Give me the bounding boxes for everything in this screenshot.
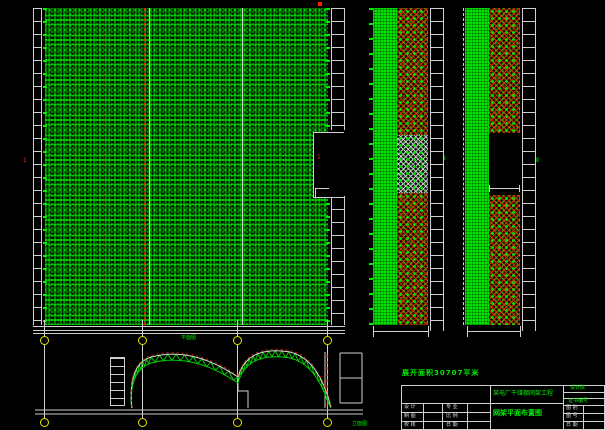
plan-centerline-2 xyxy=(281,8,282,325)
panel2-gap-tick-l xyxy=(489,185,490,192)
titleblock-vline xyxy=(423,403,424,430)
panel2-bottom-tick-l xyxy=(467,326,468,337)
panel2-bottom-tick-r xyxy=(520,326,521,337)
elevation-caption: 立面图 xyxy=(352,422,367,427)
titleblock-row-label: 日 期 xyxy=(566,423,578,428)
titleblock-vline xyxy=(583,405,584,430)
truss-chord xyxy=(238,349,331,405)
titleblock-project-name: 某电厂干煤棚网架工程 xyxy=(493,391,562,397)
plan-bottom-dimline-2 xyxy=(33,330,345,331)
truss-chord xyxy=(131,354,238,408)
titleblock-row-label: 制 图 xyxy=(404,414,416,419)
panel1-green-strip xyxy=(373,8,397,325)
truss-chord xyxy=(131,353,238,407)
plan-bottom-dimline-3 xyxy=(33,333,345,334)
titleblock-row-label: 日 期 xyxy=(446,423,458,428)
titleblock-drawing-title: 网架平面布置图 xyxy=(493,410,562,417)
titleblock-row-label: 设 计 xyxy=(404,405,416,410)
panel1-lattice-top xyxy=(397,8,428,135)
plan-topright-mark-icon xyxy=(318,2,322,6)
panel2-gap-dimline xyxy=(489,188,520,189)
plan-right-dim-ladder-upper xyxy=(331,8,345,130)
grid-bubble xyxy=(40,418,49,427)
grid-bubble xyxy=(233,336,242,345)
titleblock-cert-label: 证书编号 xyxy=(568,399,588,404)
titleblock-vline xyxy=(467,403,468,430)
plan-centerline-1 xyxy=(144,8,145,325)
panel2-green-strip xyxy=(465,8,489,325)
panel2-lattice-top xyxy=(489,8,520,133)
grid-bubble xyxy=(323,418,332,427)
titleblock-vline xyxy=(490,385,491,430)
panel1-lattice-mid xyxy=(397,135,428,193)
truss-chord xyxy=(131,360,238,408)
titleblock-hline xyxy=(563,392,605,393)
grid-line-2 xyxy=(142,320,143,418)
grid-bubble xyxy=(40,336,49,345)
panel1-mark: Ⅰ xyxy=(444,156,446,162)
titleblock-vline xyxy=(442,403,443,430)
panel1-bottom-tick-r xyxy=(428,326,429,337)
grid-bubble xyxy=(323,336,332,345)
grid-bubble xyxy=(138,418,147,427)
truss-chord xyxy=(238,351,331,407)
panel2-gap-tick-r xyxy=(519,185,520,192)
elevation-left-dim-ladder xyxy=(110,357,125,406)
panel2-bottom-dimline xyxy=(467,331,520,332)
valley-step-line xyxy=(238,378,248,408)
titleblock-org-label: 设计院 xyxy=(570,386,585,391)
panel2-mark: Ⅱ xyxy=(536,158,539,164)
panel2-lattice-bottom xyxy=(489,195,520,325)
panel1-bottom-dimline xyxy=(373,331,428,332)
titleblock-row-label: 比 例 xyxy=(446,414,458,419)
plan-right-dim-ladder-lower xyxy=(331,196,345,325)
titleblock-area-label: 展开面积30707平米 xyxy=(402,370,479,377)
titleblock-row-label: 专 业 xyxy=(446,405,458,410)
roof-plan-hatch xyxy=(45,8,328,325)
plan-caption: 平面图 xyxy=(181,336,196,341)
grid-line-1 xyxy=(44,320,45,418)
plan-bay-divider-1 xyxy=(149,8,150,325)
titleblock-border-left xyxy=(401,385,402,430)
truss-chord xyxy=(238,351,331,407)
panel1-bottom-tick-l xyxy=(373,326,374,337)
truss-chord xyxy=(238,357,331,408)
drawing-canvas[interactable]: 1 1 平面图 Ⅰ Ⅱ xyxy=(0,0,605,430)
plan-door-axis-mark: 1 xyxy=(317,155,321,161)
plan-left-edge-ticks xyxy=(43,8,47,325)
panel1-left-ticks xyxy=(369,8,373,325)
plan-bay-divider-2 xyxy=(242,8,243,325)
plan-left-axis-mark: 1 xyxy=(23,158,27,164)
plan-bottom-dimline-1 xyxy=(33,326,345,327)
panel1-dim-ladder xyxy=(430,8,444,331)
plan-left-dim-ladder xyxy=(33,8,42,325)
grid-line-4 xyxy=(327,320,328,418)
grid-bubble xyxy=(138,336,147,345)
titleblock-row-label: 图 别 xyxy=(566,406,578,411)
titleblock-row-label: 图 号 xyxy=(566,414,578,419)
panel2-dim-ladder xyxy=(522,8,536,331)
plan-cutout-step xyxy=(315,188,329,197)
titleblock-hline xyxy=(490,403,564,404)
titleblock-row-label: 校 核 xyxy=(404,423,416,428)
grid-line-3 xyxy=(237,320,238,418)
panel2-left-dashed-edge xyxy=(463,8,464,325)
grid-bubble xyxy=(233,418,242,427)
panel1-lattice-bottom xyxy=(397,193,428,325)
truss-chord xyxy=(131,354,238,408)
